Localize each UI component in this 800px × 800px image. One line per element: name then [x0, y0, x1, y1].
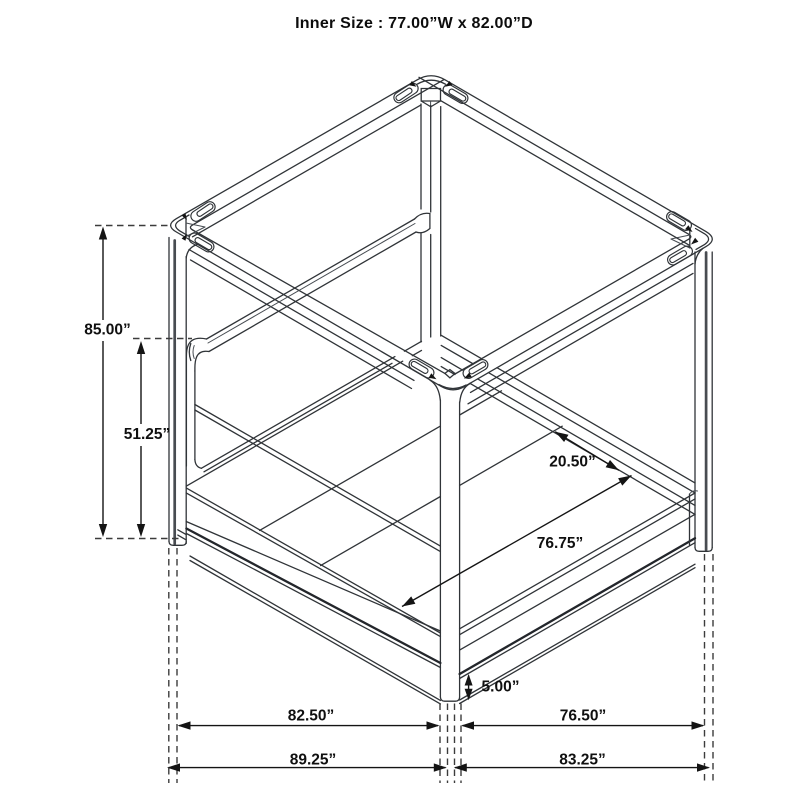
svg-text:76.50”: 76.50” [560, 707, 607, 724]
svg-text:5.00”: 5.00” [482, 679, 520, 696]
svg-text:Inner Size : 77.00”W x 82.00”D: Inner Size : 77.00”W x 82.00”D [295, 15, 533, 32]
svg-text:83.25”: 83.25” [559, 752, 606, 769]
svg-text:20.50”: 20.50” [549, 454, 596, 471]
svg-text:76.75”: 76.75” [537, 535, 584, 552]
svg-text:82.50”: 82.50” [288, 707, 335, 724]
svg-text:51.25”: 51.25” [124, 426, 171, 443]
svg-text:89.25”: 89.25” [290, 752, 337, 769]
svg-text:85.00”: 85.00” [84, 322, 131, 339]
